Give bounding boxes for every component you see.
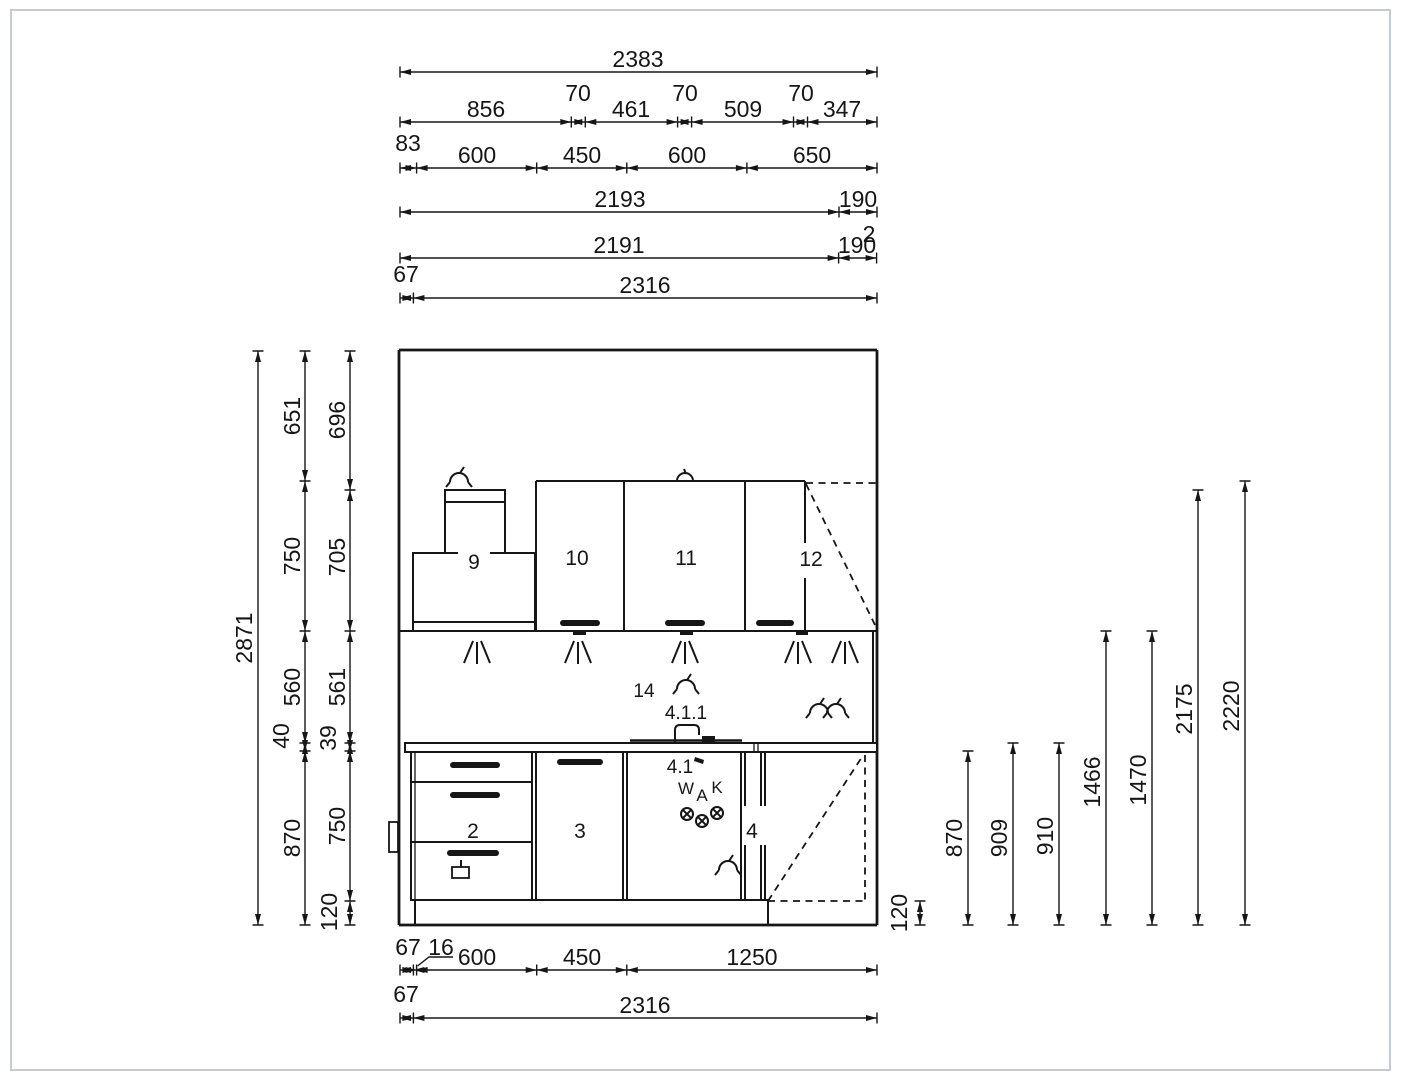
handle-drawer-1 bbox=[450, 762, 500, 768]
handle-cabinet-12 bbox=[756, 620, 794, 626]
dim-label-2191: 2191 bbox=[593, 232, 644, 258]
label-cold-water-k: K bbox=[711, 778, 723, 797]
dim-label-1470: 1470 bbox=[1125, 754, 1151, 805]
label-wall-cabinet-10: 10 bbox=[565, 547, 588, 570]
dim-label-2193: 2193 bbox=[594, 186, 645, 212]
label-niche-14: 14 bbox=[633, 681, 655, 702]
dim-label-750a: 750 bbox=[279, 537, 305, 575]
label-drain-a: A bbox=[696, 786, 708, 805]
label-hot-water-w: W bbox=[678, 779, 694, 798]
dim-label-509: 509 bbox=[724, 96, 762, 122]
dim-label-2383: 2383 bbox=[612, 46, 663, 72]
dim-label-67-top: 67 bbox=[393, 261, 419, 287]
wall-notch bbox=[389, 822, 398, 852]
label-hood-9: 9 bbox=[468, 551, 480, 574]
dim-label-650: 650 bbox=[793, 142, 831, 168]
dim-label-870-right: 870 bbox=[941, 819, 967, 857]
dim-label-705: 705 bbox=[324, 538, 350, 576]
dim-label-347: 347 bbox=[823, 96, 861, 122]
dim-label-gap-2: 2 bbox=[863, 221, 876, 247]
dim-label-696: 696 bbox=[324, 401, 350, 439]
dim-label-450-bottom: 450 bbox=[563, 944, 601, 970]
label-base-cabinet-3: 3 bbox=[574, 820, 586, 843]
dim-label-1466: 1466 bbox=[1079, 756, 1105, 807]
dim-label-560: 560 bbox=[279, 668, 305, 706]
label-base-cabinet-2: 2 bbox=[467, 820, 479, 843]
dim-label-2220: 2220 bbox=[1218, 680, 1244, 731]
dim-label-651: 651 bbox=[279, 397, 305, 435]
dim-label-856: 856 bbox=[467, 96, 505, 122]
dim-label-450a: 450 bbox=[563, 142, 601, 168]
dim-label-910: 910 bbox=[1032, 817, 1058, 855]
handle-cabinet-3 bbox=[557, 759, 603, 765]
dim-label-870-left: 870 bbox=[279, 819, 305, 857]
dim-label-70c: 70 bbox=[788, 80, 814, 106]
dim-label-750b: 750 bbox=[324, 807, 350, 845]
faucet-base bbox=[702, 736, 715, 742]
label-sink-cabinet-4-1: 4.1 bbox=[667, 757, 693, 778]
dim-label-2316-bottom: 2316 bbox=[619, 992, 670, 1018]
page-border bbox=[11, 10, 1390, 1070]
hinge-mark-11 bbox=[680, 631, 693, 635]
dim-label-190a: 190 bbox=[839, 186, 877, 212]
dim-label-909: 909 bbox=[986, 819, 1012, 857]
dim-label-39: 39 bbox=[315, 725, 341, 751]
dim-label-83: 83 bbox=[395, 130, 421, 156]
dim-label-600b: 600 bbox=[668, 142, 706, 168]
dim-label-70b: 70 bbox=[672, 80, 698, 106]
hinge-mark-10 bbox=[573, 631, 586, 635]
label-corner-cabinet-4: 4 bbox=[746, 820, 758, 843]
label-faucet-4-1-1: 4.1.1 bbox=[665, 703, 707, 724]
kitchen-elevation-drawing: 2383 856 70 461 70 509 70 347 bbox=[0, 0, 1401, 1080]
dim-label-40: 40 bbox=[268, 723, 294, 749]
countertop-slab bbox=[405, 743, 877, 752]
dim-label-2316-top: 2316 bbox=[619, 272, 670, 298]
dim-label-1250: 1250 bbox=[726, 944, 777, 970]
label-wall-cabinet-11: 11 bbox=[675, 547, 697, 570]
dim-label-600a: 600 bbox=[458, 142, 496, 168]
handle-drawer-3 bbox=[447, 850, 499, 856]
dim-label-461: 461 bbox=[612, 96, 650, 122]
dim-label-600-bottom: 600 bbox=[458, 944, 496, 970]
handle-cabinet-10 bbox=[560, 620, 600, 626]
handle-cabinet-11 bbox=[665, 620, 705, 626]
label-wall-corner-cabinet-12: 12 bbox=[799, 548, 822, 571]
dim-label-67-bottom1: 67 bbox=[395, 934, 421, 960]
dim-label-120-right: 120 bbox=[886, 894, 912, 932]
dim-label-2175: 2175 bbox=[1171, 683, 1197, 734]
dim-label-561: 561 bbox=[324, 668, 350, 706]
dim-label-2871: 2871 bbox=[231, 612, 257, 663]
dim-label-70a: 70 bbox=[565, 80, 591, 106]
dim-label-120-left: 120 bbox=[316, 893, 342, 931]
dim-label-67-bottom2: 67 bbox=[393, 981, 419, 1007]
handle-drawer-2 bbox=[450, 792, 500, 798]
hinge-mark-12 bbox=[796, 631, 808, 635]
dim-label-16: 16 bbox=[428, 934, 454, 960]
